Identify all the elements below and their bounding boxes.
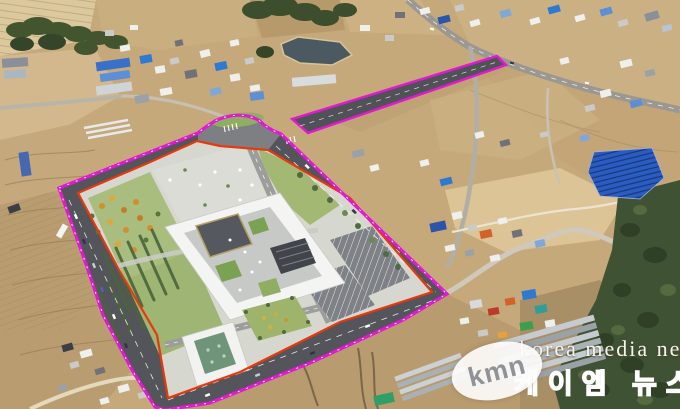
aerial-photo: korea media news 케이엠 뉴스 kmn: [0, 0, 680, 409]
aerial-photo-canvas: [0, 0, 680, 409]
